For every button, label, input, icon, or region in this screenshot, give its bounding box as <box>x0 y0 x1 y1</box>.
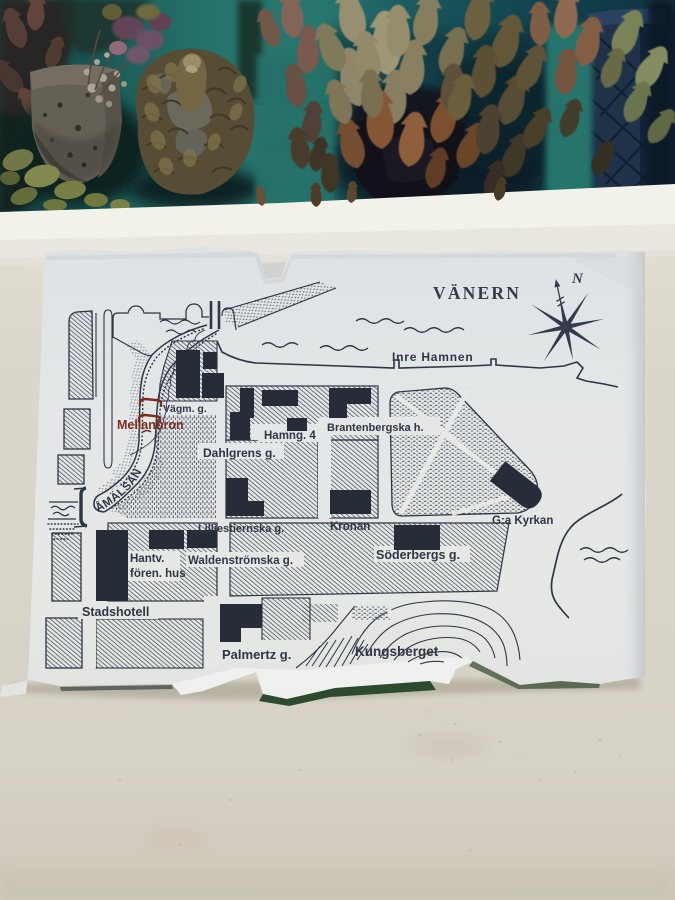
svg-text:Inre Hamnen: Inre Hamnen <box>392 350 474 364</box>
svg-text:Söderbergs g.: Söderbergs g. <box>376 548 460 562</box>
svg-text:Kronan: Kronan <box>330 521 370 533</box>
svg-text:fören. hus: fören. hus <box>130 568 186 580</box>
svg-text:Lilliestiernska g.: Lilliestiernska g. <box>198 523 284 535</box>
svg-text:Palmertz g.: Palmertz g. <box>222 647 291 662</box>
svg-text:Mellanbron: Mellanbron <box>117 418 184 432</box>
svg-text:VÄNERN: VÄNERN <box>433 283 521 303</box>
svg-text:Hamng. 4: Hamng. 4 <box>264 430 316 442</box>
svg-text:Brantenbergska h.: Brantenbergska h. <box>327 422 424 434</box>
svg-text:G:a Kyrkan: G:a Kyrkan <box>492 515 553 527</box>
svg-text:Stadshotell: Stadshotell <box>82 605 149 619</box>
svg-text:Kungsberget: Kungsberget <box>355 644 439 659</box>
svg-text:Hantv.: Hantv. <box>130 553 164 565</box>
svg-text:N: N <box>571 271 584 287</box>
svg-text:Vägm. g.: Vägm. g. <box>163 403 207 415</box>
svg-text:Waldenströmska g.: Waldenströmska g. <box>188 555 293 567</box>
svg-text:Dahlgrens g.: Dahlgrens g. <box>203 446 276 460</box>
